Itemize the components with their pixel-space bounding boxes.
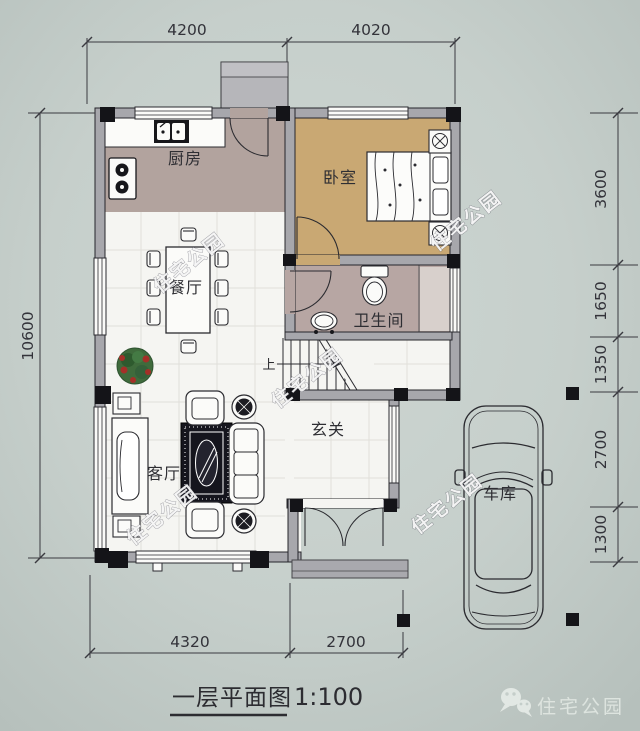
stairs-up-label: 上 (262, 358, 275, 373)
column (394, 388, 408, 401)
bathroom-shower-area (420, 267, 451, 331)
column (283, 254, 296, 266)
porch-slab (292, 560, 408, 578)
grid-marker (397, 614, 410, 627)
plant (117, 348, 153, 384)
sofa-single-bottom (186, 502, 224, 538)
bathroom-label: 卫生间 (353, 311, 404, 330)
title-block: 一层平面图 1:100 (170, 683, 363, 715)
title-scale: 1:100 (294, 683, 363, 711)
page-title: 一层平面图 (172, 685, 292, 711)
column (447, 254, 460, 268)
dim-right-2: 1650 (592, 281, 610, 320)
kitchen-sink (154, 120, 189, 143)
window-sill-tab (153, 563, 162, 571)
column (100, 107, 115, 122)
garage-label: 车库 (483, 484, 517, 503)
kitchen-label: 厨房 (168, 149, 202, 168)
dining-chair (181, 228, 196, 241)
window-living-left (94, 407, 106, 551)
dim-bottom-2: 2700 (326, 633, 365, 651)
column (250, 551, 269, 568)
dim-right-3: 1350 (592, 345, 610, 384)
dim-right-4: 2700 (592, 430, 610, 469)
wall-kitchen-bedroom (285, 108, 295, 265)
bedroom-door-opening (296, 255, 340, 265)
dining-chair (147, 251, 160, 267)
entry-label: 玄关 (311, 420, 345, 439)
dim-left-1: 10600 (19, 311, 37, 360)
bed (367, 152, 451, 221)
toilet (361, 266, 388, 305)
window-bathroom-east (450, 268, 460, 332)
window-entry-east (389, 406, 399, 483)
nightstand-top (429, 130, 451, 153)
window-bedroom-top (328, 107, 408, 119)
column (276, 106, 290, 121)
window-kitchen-top (135, 107, 212, 119)
side-table-bottom (232, 509, 256, 533)
column (446, 107, 461, 122)
stove (109, 158, 136, 199)
column (384, 499, 397, 512)
living-label: 客厅 (147, 464, 181, 483)
side-table-top (232, 395, 256, 419)
grid-marker (566, 613, 579, 626)
dining-chair (147, 309, 160, 325)
window-dining-left (94, 258, 106, 335)
window-sill-tab (233, 563, 242, 571)
sofa-long (229, 423, 264, 504)
kitchen-door-opening (230, 108, 268, 118)
column (446, 388, 460, 401)
column (290, 499, 303, 512)
wall-bath-south (285, 390, 460, 400)
column (95, 548, 109, 563)
column (108, 551, 128, 568)
bathroom-door-opening (285, 270, 295, 314)
pillow (433, 157, 448, 183)
pillow (433, 189, 448, 215)
column (95, 386, 111, 404)
dining-chair (215, 280, 228, 296)
grid-marker (566, 387, 579, 400)
dim-top-2: 4020 (351, 21, 390, 39)
dim-bottom-1: 4320 (170, 633, 209, 651)
dim-right-1: 3600 (592, 169, 610, 208)
bedroom-label: 卧室 (323, 168, 357, 187)
entry-door-opening (303, 499, 383, 508)
sofa-single-top (186, 391, 224, 425)
floor-plan-image: 上 (0, 0, 640, 731)
dim-right-5: 1300 (592, 515, 610, 554)
dim-top-1: 4200 (167, 21, 206, 39)
logo-text: 住宅公园 (537, 696, 625, 718)
dining-chair (181, 340, 196, 353)
dining-chair (215, 309, 228, 325)
wall-bath-stair (285, 332, 452, 340)
floor-plan-svg: 上 (0, 0, 640, 731)
